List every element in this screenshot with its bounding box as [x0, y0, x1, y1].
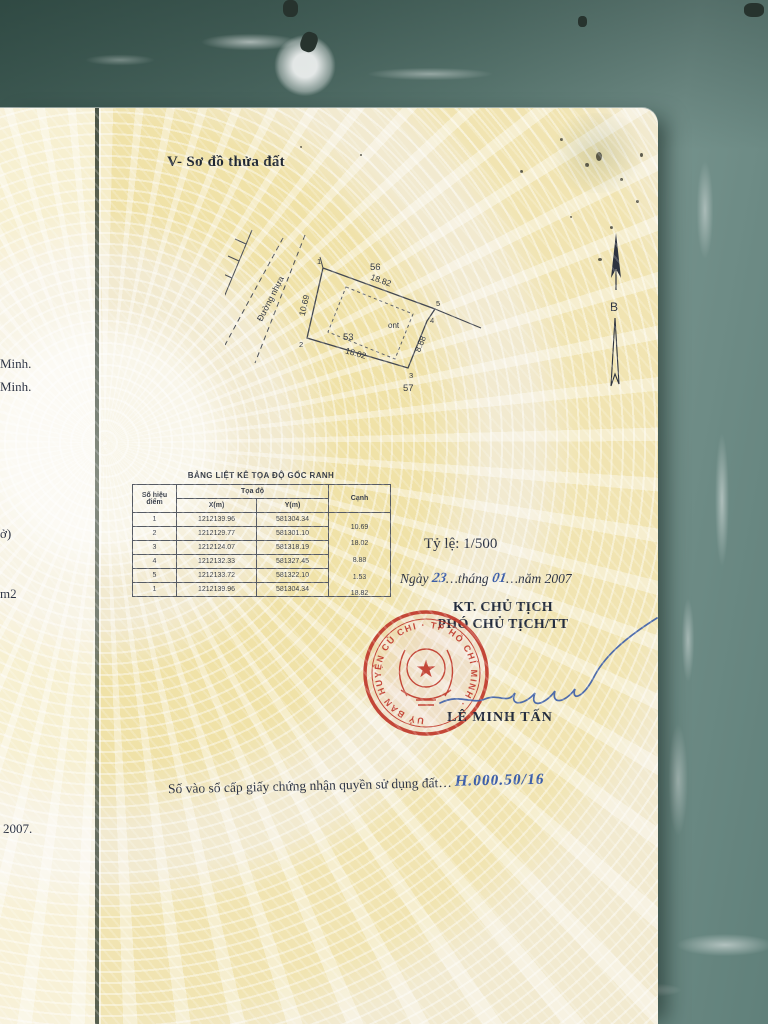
plot-diagram: Đường nhựa 18.82 10.69 18.02 8.88 56 57 … — [225, 228, 495, 400]
point-label-3: 3 — [409, 371, 413, 380]
photo-of-land-certificate: Minh. Minh. ở) m2 2007. V- Sơ đồ thửa đấ… — [0, 0, 768, 1024]
section-title: V- Sơ đồ thửa đất — [167, 154, 285, 171]
cell-x: 1212124.07 — [177, 541, 257, 555]
edge-length-right: 8.88 — [412, 334, 428, 353]
cell-point: 4 — [133, 555, 177, 569]
cell-x: 1212139.96 — [177, 513, 257, 527]
plot-number-label: 53 — [343, 332, 354, 343]
edge-length-value: 10.69 — [329, 519, 390, 536]
point-label-1: 1 — [317, 257, 321, 266]
signer-name: LÊ MINH TẤN — [420, 710, 580, 726]
cell-x: 1212129.77 — [177, 527, 257, 541]
registry-line: Số vào sổ cấp giấy chứng nhận quyền sử d… — [168, 772, 545, 799]
registry-label: Số vào sổ cấp giấy chứng nhận quyền sử d… — [168, 775, 452, 796]
cell-y: 581304.34 — [257, 583, 329, 597]
left-page-fragment: ở) — [0, 526, 11, 542]
left-page-fragment: Minh. — [0, 356, 31, 372]
col-header-x: X(m) — [177, 499, 257, 513]
cell-y: 581301.10 — [257, 527, 329, 541]
parcel-boundary — [307, 268, 435, 368]
cell-point: 3 — [133, 541, 177, 555]
cell-x: 1212139.96 — [177, 583, 257, 597]
left-page-fragment: 2007. — [3, 821, 32, 837]
paper-speck — [300, 146, 302, 148]
cell-x: 1212133.72 — [177, 569, 257, 583]
map-scale-label: Tỷ lệ: 1/500 — [424, 536, 497, 553]
cell-y: 581318.19 — [257, 541, 329, 555]
cell-point: 5 — [133, 569, 177, 583]
edge-length-value: 1.53 — [329, 569, 390, 586]
col-header-edge: Cạnh — [329, 485, 391, 513]
edge-length-value: 18.02 — [329, 536, 390, 553]
ink-signature — [415, 603, 665, 723]
col-header-y: Y(m) — [257, 499, 329, 513]
cell-y: 581304.34 — [257, 513, 329, 527]
cell-point: 1 — [133, 513, 177, 527]
point-label-5: 5 — [436, 299, 440, 308]
table-row: 1 1212139.96 581304.34 10.69 18.02 8.88 … — [133, 513, 391, 527]
date-line: Ngày 23…tháng 01…năm 2007 — [400, 571, 572, 588]
boundary-extension-line — [435, 309, 481, 328]
signature-stroke — [440, 618, 657, 703]
left-page-fragment: Minh. — [0, 379, 31, 395]
coordinate-table-block: BẢNG LIỆT KÊ TỌA ĐỘ GỐC RANH Số hiệu điể… — [132, 471, 390, 597]
paper-speck — [640, 153, 643, 157]
edge-length-bottom: 18.02 — [344, 345, 367, 361]
date-prefix: Ngày — [400, 571, 429, 586]
date-mid: …tháng — [446, 571, 489, 586]
paper-speck — [636, 200, 639, 203]
edge-length-value: 18.82 — [329, 585, 390, 602]
north-arrow-tail — [611, 318, 619, 386]
edge-length-column: 10.69 18.02 8.88 1.53 18.82 — [329, 513, 391, 597]
paper-speck — [570, 216, 572, 218]
edge-length-value: 8.88 — [329, 552, 390, 569]
cell-y: 581327.45 — [257, 555, 329, 569]
cell-x: 1212132.33 — [177, 555, 257, 569]
marble-dark-mark — [744, 3, 764, 17]
col-header-coords: Tọa độ — [177, 485, 329, 499]
marble-dark-mark — [578, 16, 587, 27]
paper-speck — [585, 163, 589, 167]
coordinate-table-title: BẢNG LIỆT KÊ TỌA ĐỘ GỐC RANH — [132, 471, 390, 480]
paper-speck — [520, 170, 523, 173]
neighbor-plot-top-label: 56 — [370, 262, 381, 273]
point-label-4: 4 — [430, 316, 434, 325]
north-symbol-label: B — [610, 300, 618, 314]
left-page-fragment: m2 — [0, 586, 17, 602]
certificate-page: Minh. Minh. ở) m2 2007. V- Sơ đồ thửa đấ… — [0, 108, 658, 1024]
paper-speck — [560, 138, 563, 141]
point-label-2: 2 — [299, 340, 303, 349]
marble-dark-mark — [283, 0, 298, 17]
handwritten-day: 23 — [431, 571, 448, 587]
cell-point: 1 — [133, 583, 177, 597]
col-header-point: Số hiệu điểm — [133, 485, 177, 513]
date-suffix: …năm 2007 — [506, 571, 572, 586]
road-far-boundary-line — [225, 230, 252, 302]
paper-speck — [596, 152, 602, 161]
north-arrow: B — [598, 226, 638, 401]
coordinate-table: Số hiệu điểm Tọa độ Cạnh X(m) Y(m) 1 121… — [132, 484, 391, 597]
left-page-edge — [0, 108, 95, 1024]
paper-speck — [360, 154, 362, 156]
cell-point: 2 — [133, 527, 177, 541]
land-use-code-label: ont — [388, 321, 400, 330]
registry-number-handwritten: H.000.50/16 — [454, 771, 546, 791]
handwritten-month: 01 — [491, 571, 508, 587]
page-fold-highlight — [99, 108, 101, 1024]
cell-y: 581322.10 — [257, 569, 329, 583]
edge-length-left: 10.69 — [297, 294, 312, 317]
neighbor-plot-bottom-label: 57 — [403, 383, 414, 394]
paper-speck — [620, 178, 623, 181]
